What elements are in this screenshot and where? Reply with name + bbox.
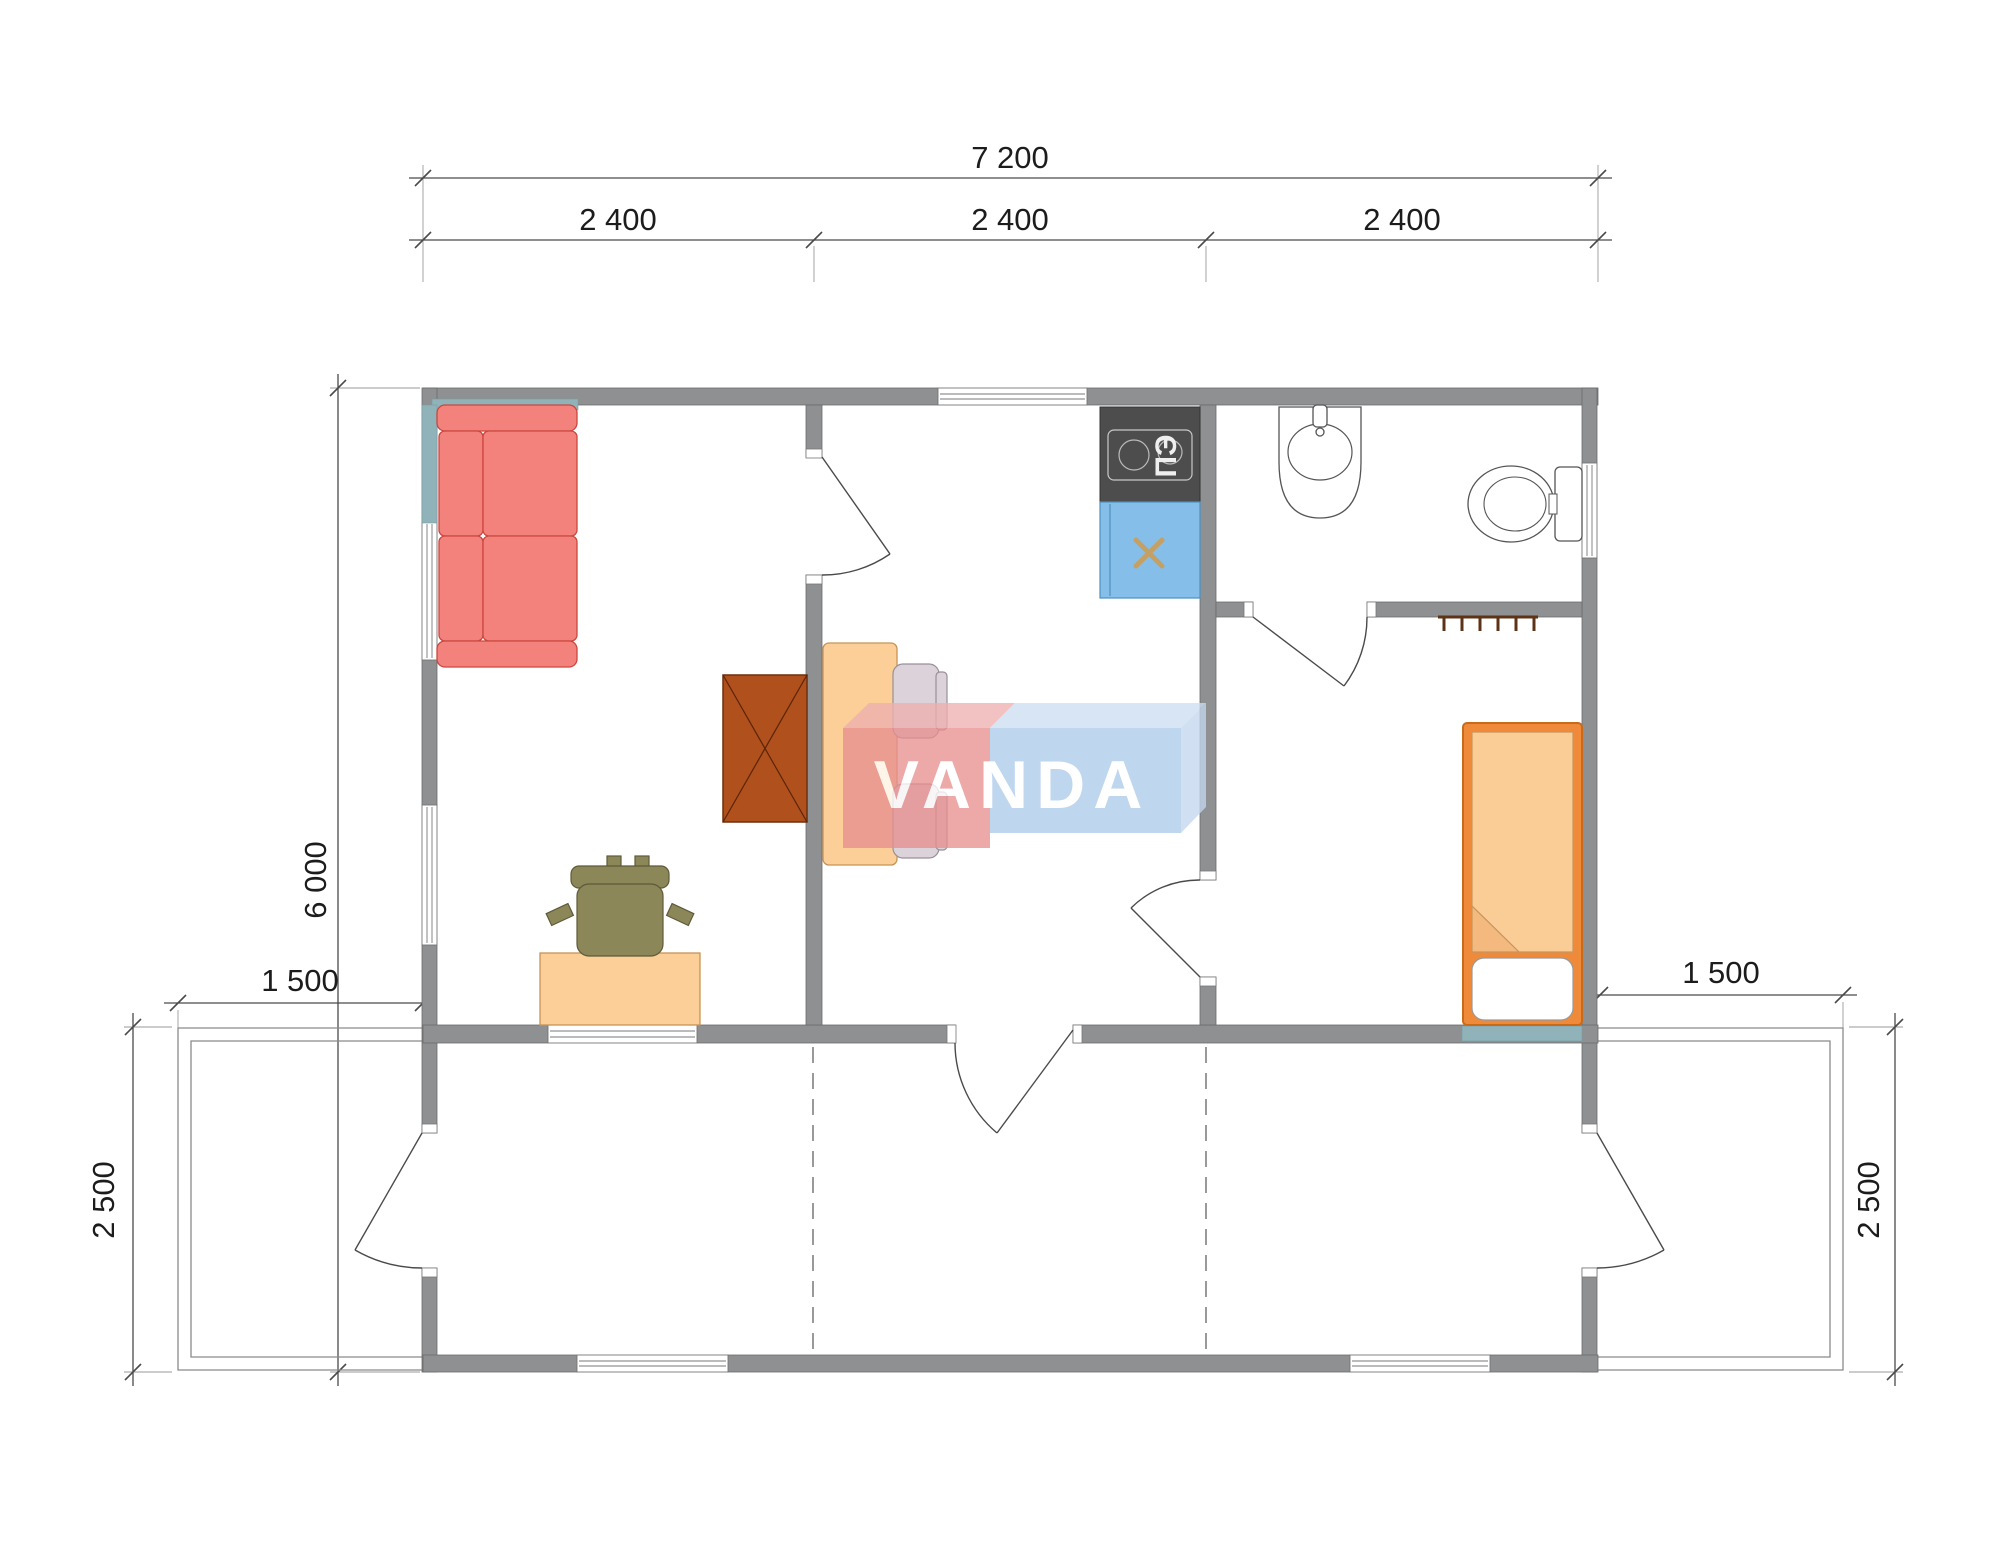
dim-label-terrace-right-depth: 2 500 xyxy=(1851,1161,1886,1239)
dimension-terrace-right-width: 1 500 xyxy=(1586,955,1857,1003)
sofa xyxy=(437,405,577,667)
dim-label-module-2: 2 400 xyxy=(971,202,1049,237)
module-grid-lines xyxy=(813,1047,1206,1353)
dim-label-terrace-left-depth: 2 500 xyxy=(86,1161,121,1239)
dimension-terrace-left-width: 1 500 xyxy=(164,963,437,1011)
window-living-left-1 xyxy=(422,522,437,660)
dim-label-terrace-right-width: 1 500 xyxy=(1682,955,1760,990)
dimension-terrace-right-depth: 2 500 xyxy=(1851,1013,1903,1386)
floor-plan-page: 7 200 2 400 2 400 2 400 6 000 1 500 xyxy=(0,0,2000,1563)
wash-basin xyxy=(1279,405,1361,518)
desk xyxy=(540,953,700,1025)
office-chair xyxy=(546,856,694,956)
door-veranda-to-left-deck xyxy=(355,1133,422,1268)
dimension-terrace-left-depth: 2 500 xyxy=(86,1013,141,1386)
dimension-overall-depth: 6 000 xyxy=(298,374,346,1386)
dim-label-overall-width: 7 200 xyxy=(971,140,1049,175)
window-veranda-bottom-right xyxy=(1350,1355,1490,1372)
bed xyxy=(1463,723,1582,1025)
dim-label-module-3: 2 400 xyxy=(1363,202,1441,237)
sofa-back-strip-left xyxy=(422,405,437,523)
wall-right xyxy=(1582,388,1597,463)
window-desk-bottom xyxy=(548,1025,697,1043)
door-main-entrance xyxy=(955,1030,1073,1133)
door-bathroom xyxy=(1253,617,1367,686)
window-veranda-bottom-left xyxy=(577,1355,728,1372)
dim-label-module-1: 2 400 xyxy=(579,202,657,237)
window-kitchen-top xyxy=(938,388,1087,405)
floor-plan-canvas: 7 200 2 400 2 400 2 400 6 000 1 500 xyxy=(0,0,2000,1563)
door-kitchen-to-bedroom xyxy=(1131,880,1200,977)
door-living-to-kitchen xyxy=(822,457,890,575)
terrace-left-outline xyxy=(178,1028,423,1370)
dim-label-terrace-left-width: 1 500 xyxy=(261,963,339,998)
toilet xyxy=(1468,466,1582,542)
terrace-right-outline xyxy=(1597,1028,1843,1370)
stove-label: ПЭ xyxy=(1150,435,1183,478)
electric-stove: ПЭ xyxy=(1100,407,1200,502)
window-living-left-2 xyxy=(422,805,437,945)
dimension-overall-width: 7 200 xyxy=(409,140,1612,186)
wall-veranda-bottom xyxy=(423,1355,577,1372)
coat-rack xyxy=(1438,617,1538,631)
wardrobe xyxy=(723,675,807,822)
window-bathroom-right xyxy=(1582,463,1597,558)
dim-label-overall-depth: 6 000 xyxy=(298,841,333,919)
brand-watermark-text: VANDA xyxy=(874,747,1151,823)
brand-watermark: VANDA xyxy=(843,703,1206,848)
door-veranda-to-right-deck xyxy=(1597,1133,1664,1268)
dimension-modules: 2 400 2 400 2 400 xyxy=(409,202,1612,248)
kitchen-sink xyxy=(1100,502,1200,598)
wall-rooms-bottom xyxy=(423,1025,548,1043)
bed-headboard-strip xyxy=(1462,1026,1582,1041)
